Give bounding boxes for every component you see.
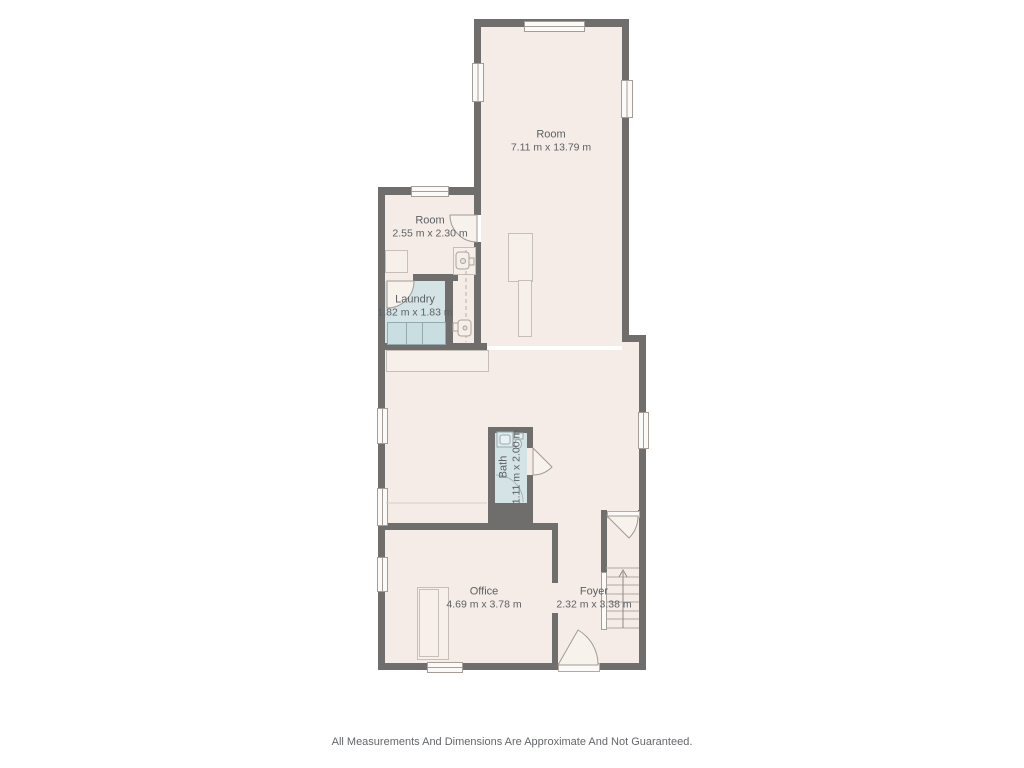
toilet-lower-bowl-icon xyxy=(463,326,467,330)
room-name: Room xyxy=(511,128,591,142)
disclaimer-text: All Measurements And Dimensions Are Appr… xyxy=(0,736,1024,748)
room-dimensions: 2.32 m x 3.38 m xyxy=(556,599,631,612)
room-dimensions: 2.55 m x 2.30 m xyxy=(392,228,467,241)
room-label-office: Office 4.69 m x 3.78 m xyxy=(446,585,521,612)
room-dimensions: 1.82 m x 1.83 m xyxy=(377,307,452,320)
linework-overlay xyxy=(0,0,1024,768)
room-label-bath: Bath 1.11 m x 2.00 m xyxy=(497,430,524,505)
door-arc-foyer xyxy=(607,516,638,538)
room-name: Bath xyxy=(497,430,511,505)
room-dimensions: 4.69 m x 3.78 m xyxy=(446,599,521,612)
room-name: Room xyxy=(392,214,467,228)
room-label-large-room: Room 7.11 m x 13.79 m xyxy=(511,128,591,155)
door-arc-entry xyxy=(558,630,598,665)
floorplan-canvas: Room 7.11 m x 13.79 m Room 2.55 m x 2.30… xyxy=(0,0,1024,768)
room-name: Foyer xyxy=(556,585,631,599)
toilet-upper-cistern-icon xyxy=(469,258,474,265)
toilet-lower-cistern-icon xyxy=(453,323,458,331)
door-arc-bath xyxy=(533,448,552,475)
room-label-foyer: Foyer 2.32 m x 3.38 m xyxy=(556,585,631,612)
room-dimensions: 7.11 m x 13.79 m xyxy=(511,142,591,155)
room-label-small-room: Room 2.55 m x 2.30 m xyxy=(392,214,467,241)
room-name: Laundry xyxy=(377,293,452,307)
room-name: Office xyxy=(446,585,521,599)
room-label-laundry: Laundry 1.82 m x 1.83 m xyxy=(377,293,452,320)
toilet-upper-bowl-icon xyxy=(461,259,466,264)
room-dimensions: 1.11 m x 2.00 m xyxy=(511,430,524,505)
